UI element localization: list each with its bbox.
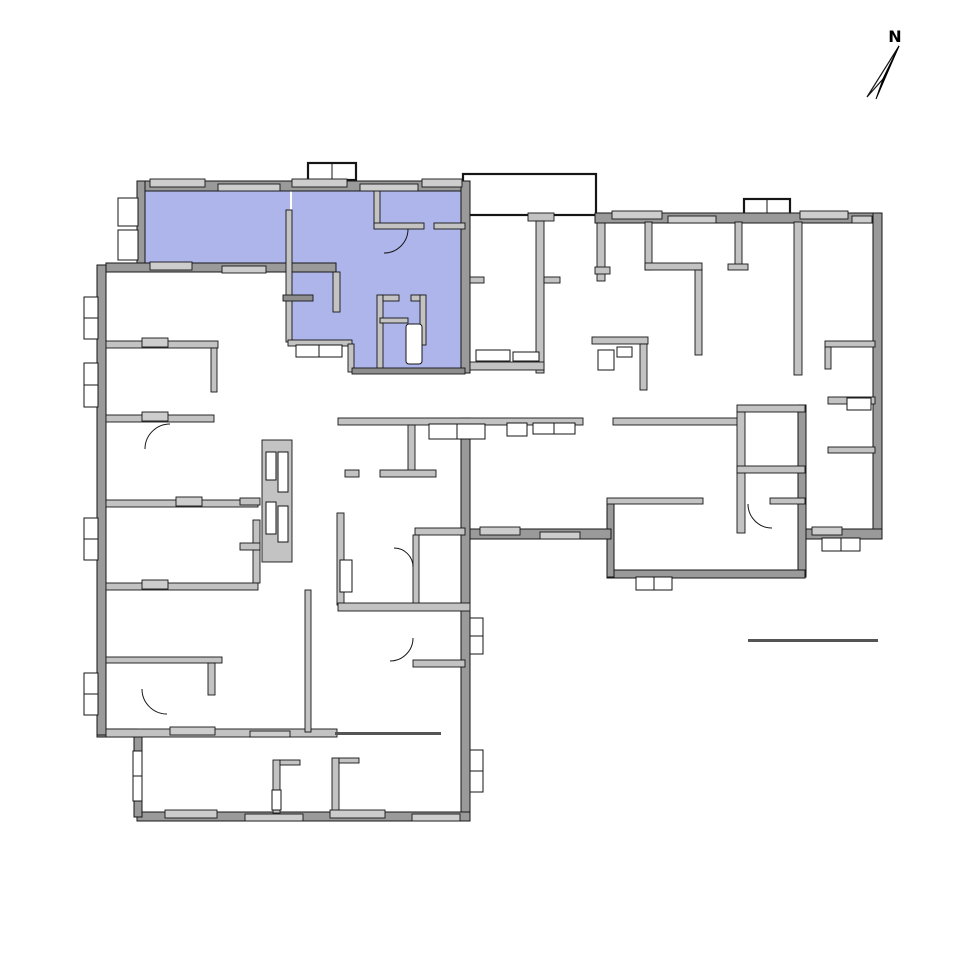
floor-plan-page: N bbox=[0, 0, 960, 960]
highlighted-room-left[interactable] bbox=[142, 188, 290, 266]
floor-plan-svg: N bbox=[0, 0, 960, 960]
north-arrow: N bbox=[867, 27, 902, 99]
fixtures-group bbox=[266, 324, 871, 810]
north-needle-icon bbox=[867, 46, 899, 99]
north-label: N bbox=[888, 27, 901, 46]
walls-interior-group bbox=[106, 188, 878, 813]
